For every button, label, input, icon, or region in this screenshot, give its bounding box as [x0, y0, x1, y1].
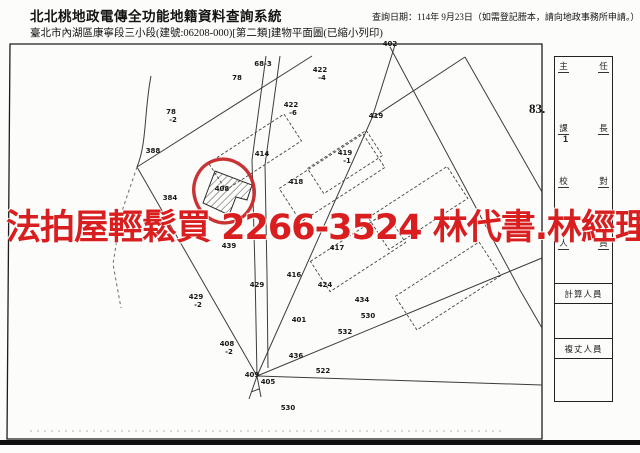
lot-number-label: 429 [250, 281, 265, 289]
lot-number-label: 530 [361, 312, 376, 320]
lot-number-label: 429 [189, 293, 204, 301]
lot-number-label: 408 [220, 340, 235, 348]
role-character: 對 [598, 176, 609, 188]
signature-role-pair: 校對 [558, 176, 609, 188]
lot-number-label: 424 [318, 281, 333, 289]
stamp-mark: 1 [563, 134, 568, 144]
lot-number-label: 418 [289, 178, 304, 186]
signature-row-label: 複丈人員 [554, 338, 613, 359]
lot-number-label: 401 [292, 316, 307, 324]
role-character: 主 [558, 61, 569, 73]
lot-number-label: 388 [146, 147, 161, 155]
lot-number-label: 422 [313, 66, 328, 74]
role-character: 長 [598, 123, 609, 135]
lot-number-label: 78 [166, 108, 176, 116]
lot-number-label: 436 [289, 352, 304, 360]
lot-number-label: 414 [255, 150, 270, 158]
lot-number-label: 419 [338, 149, 353, 157]
lot-number-label: 416 [287, 271, 302, 279]
lot-number-label: 68-3 [254, 60, 272, 68]
lot-number-label: -2 [169, 116, 177, 124]
role-character: 校 [558, 176, 569, 188]
signature-role-pair: 主任 [558, 61, 609, 73]
lot-number-label: 402 [383, 40, 398, 48]
bottom-scan-edge [0, 440, 640, 445]
watermark-text: 法拍屋輕鬆買 2266-3524 林代書.林經理 [6, 199, 640, 250]
lot-number-label: 530 [281, 404, 296, 412]
lot-number-label: 422 [284, 101, 299, 109]
lot-number-label: 532 [338, 328, 353, 336]
role-character: 任 [598, 61, 609, 73]
lot-number-label: 434 [355, 296, 370, 304]
lot-number-label: 522 [316, 367, 331, 375]
lot-number-label: -4 [318, 74, 326, 82]
sheet-number: 83. [529, 101, 545, 117]
lot-number-label: -1 [343, 157, 351, 165]
lot-number-label: 419 [369, 112, 384, 120]
lot-number-label: 78 [232, 74, 242, 82]
lot-number-label: -6 [289, 109, 297, 117]
lot-number-label: 405 [261, 378, 276, 386]
lot-number-label: 408 [215, 185, 230, 193]
query-result-page: 北北桃地政電傳全功能地籍資料查詢系統 查詢日期：114年 9月23日（如需登記謄… [0, 0, 640, 453]
lot-number-label: -2 [225, 348, 233, 356]
lot-number-label: -2 [194, 301, 202, 309]
lot-number-label: 409 [245, 371, 260, 379]
signature-row-label: 計算人員 [554, 283, 613, 304]
